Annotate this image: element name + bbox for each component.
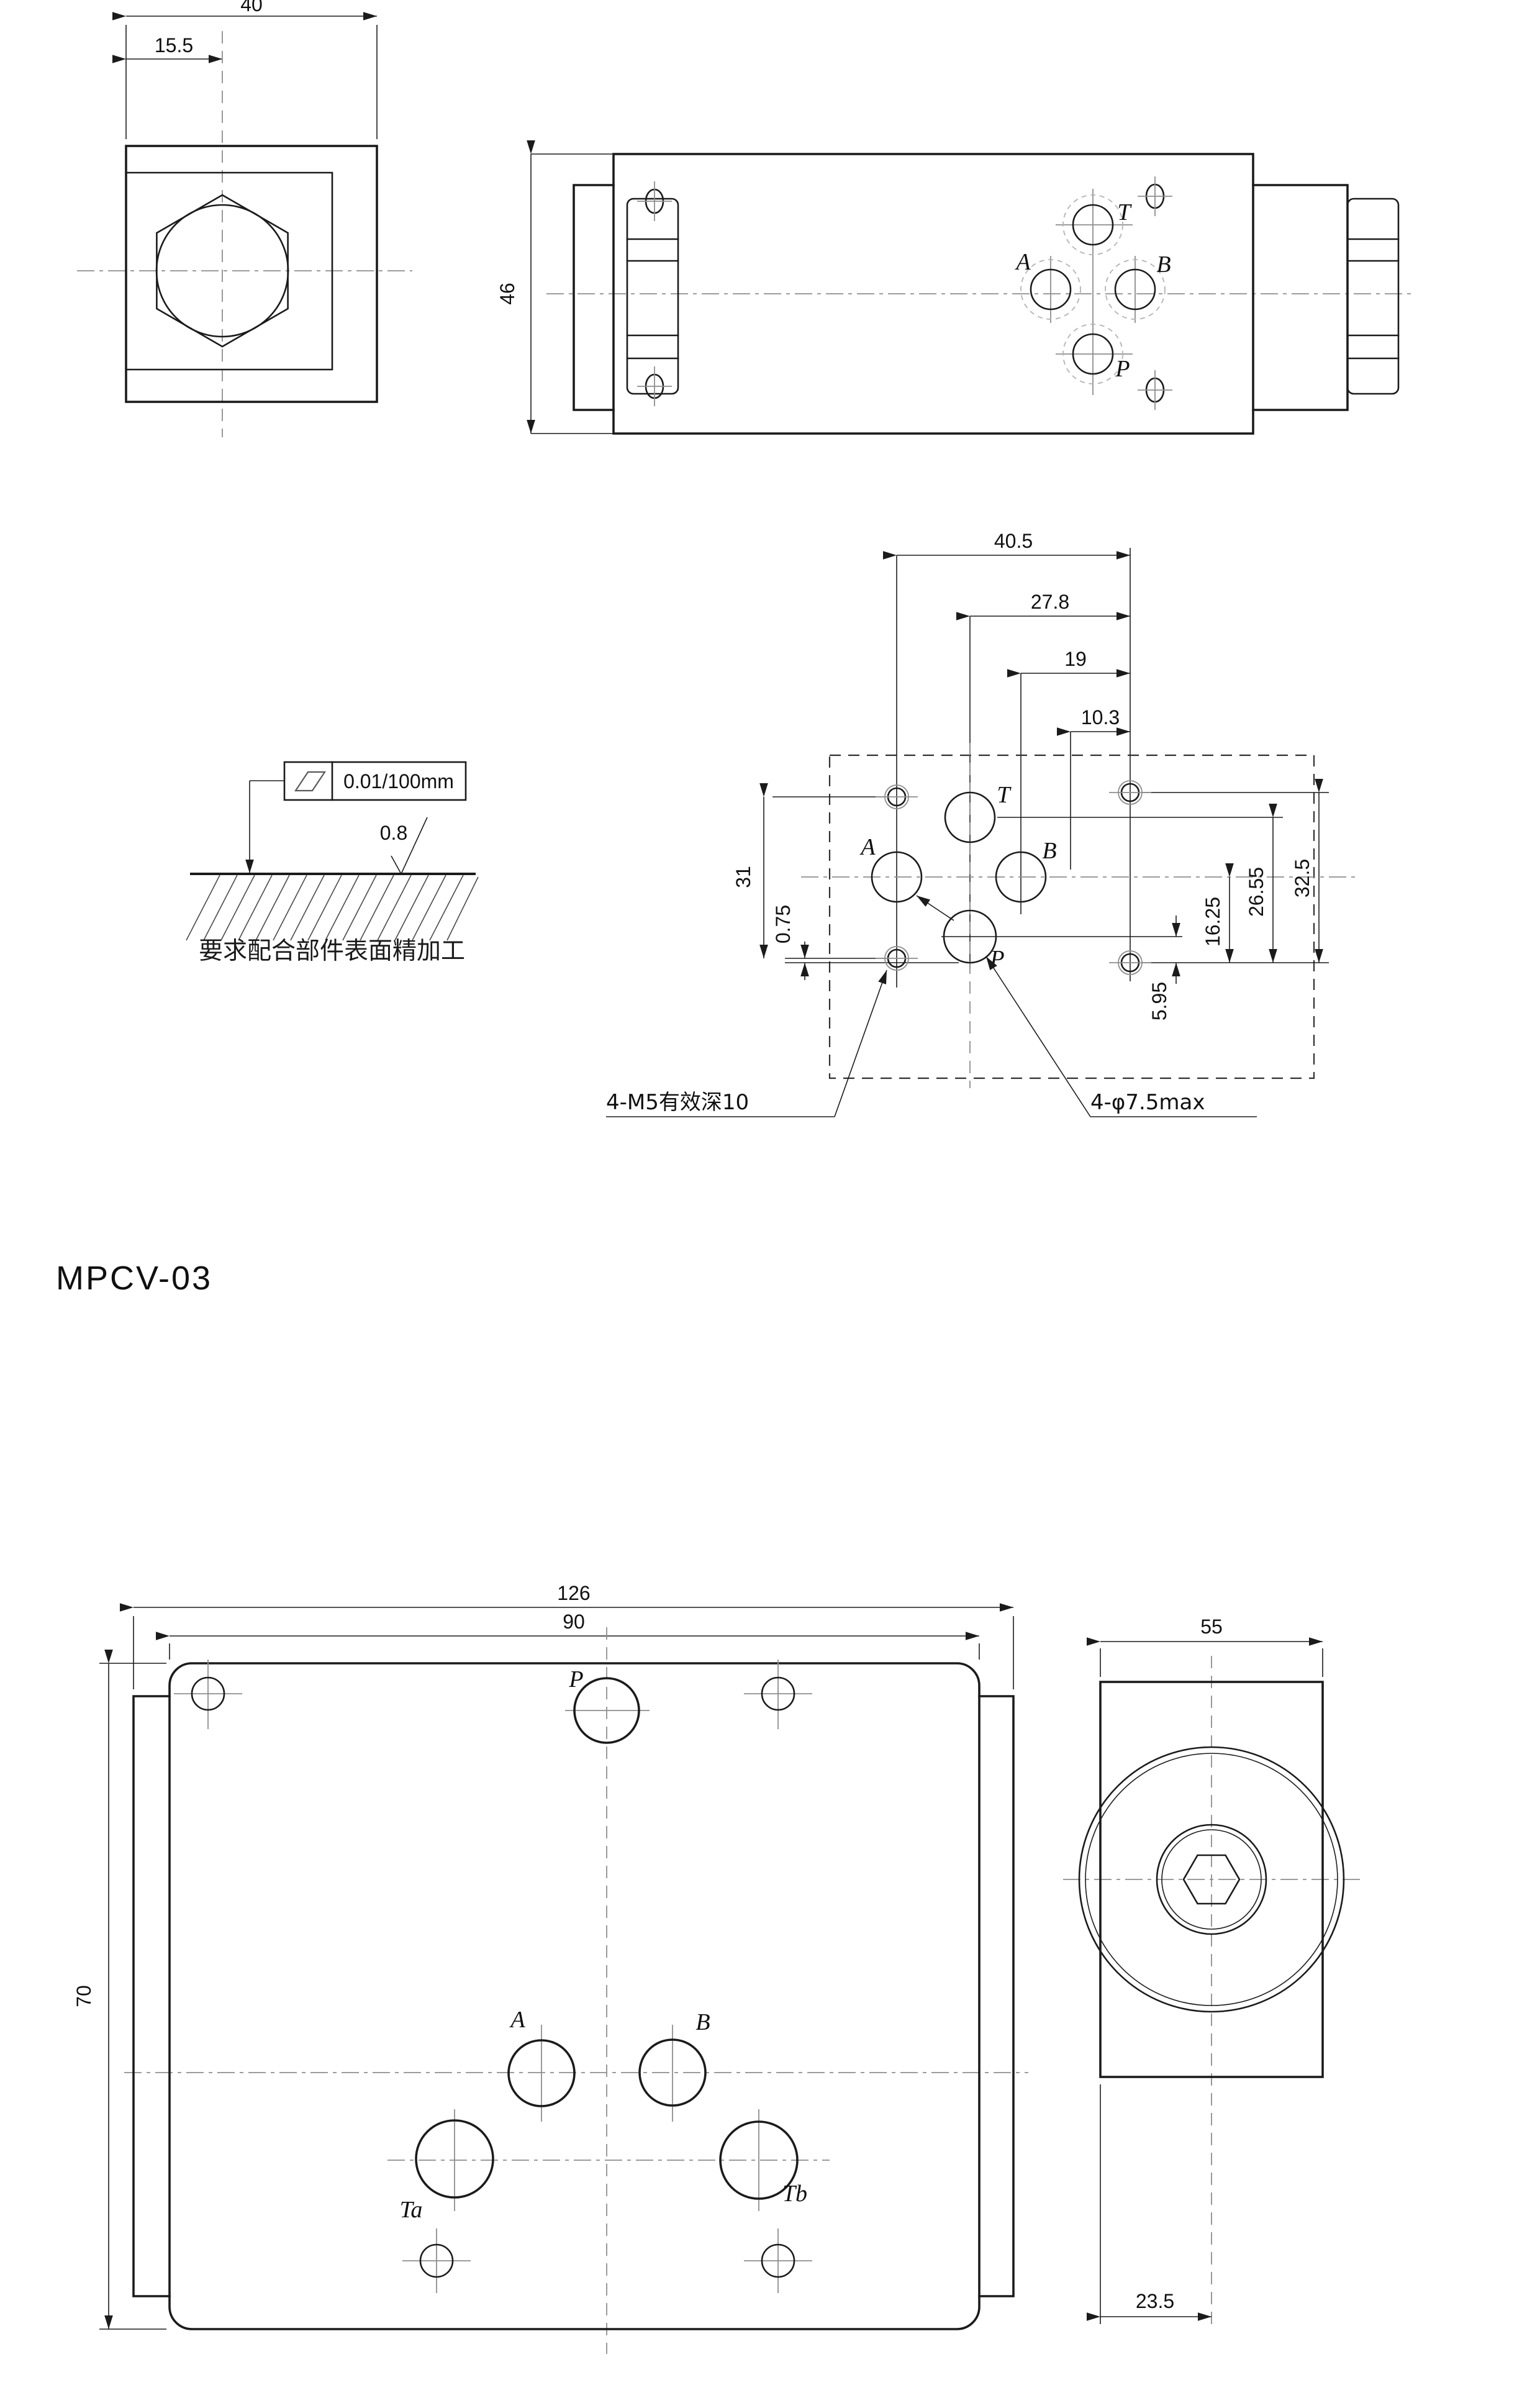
dim-16-25: 16.25 (1202, 897, 1224, 947)
surface-spec: 0.01/100mm 0.8 要求配合部件表面精加工 (186, 762, 478, 965)
mount-port-P-label: P (989, 946, 1004, 972)
bottom-bolt-holes (192, 1678, 794, 2277)
bottom-view: 126 90 70 P A B (73, 1582, 1028, 2354)
dim-5-95: 5.95 (1148, 982, 1171, 1020)
roughness-value: 0.8 (380, 822, 407, 844)
dim-15-5: 15.5 (155, 34, 193, 57)
port-P-label: P (1115, 356, 1130, 382)
dim-70: 70 (73, 1985, 95, 2007)
flatness-value: 0.01/100mm (343, 770, 454, 793)
bottom-port-B-label: B (695, 2009, 710, 2035)
end-view: 40 15.5 (77, 0, 412, 437)
dim-31: 31 (732, 866, 754, 888)
dim-27-8: 27.8 (1031, 591, 1069, 613)
bottom-port-P-label: P (568, 1666, 583, 1692)
note-thread: 4-M5有效深10 (606, 1090, 749, 1115)
bottom-body (170, 1663, 979, 2329)
mounting-bolt-holes (876, 781, 1151, 974)
dim-46: 46 (496, 283, 519, 305)
front-view: 46 (496, 154, 1416, 434)
port-B-label: B (1156, 252, 1171, 278)
hatching (186, 875, 478, 940)
dim-55: 55 (1200, 1615, 1223, 1638)
front-bolt-holes (637, 176, 1172, 410)
dim-40-5: 40.5 (994, 530, 1033, 552)
engineering-drawing: 40 15.5 46 (0, 0, 1540, 2385)
left-hex-nut (627, 199, 678, 394)
dim-23-5: 23.5 (1136, 2290, 1174, 2312)
bottom-right-tab (979, 1696, 1013, 2296)
surface-caption: 要求配合部件表面精加工 (199, 937, 465, 965)
right-hex-nut (1347, 199, 1398, 394)
end-body-outline (126, 146, 377, 402)
parallelism-icon (296, 772, 325, 791)
dim-0-75: 0.75 (772, 905, 794, 943)
front-right-tab (1253, 185, 1347, 410)
bottom-port-A-label: A (509, 2007, 525, 2033)
note-thread-leader: 4-M5有效深10 (606, 970, 887, 1117)
bottom-port-Ta-label: Ta (400, 2197, 423, 2223)
port-A-label: A (1014, 249, 1031, 275)
side-view: 55 23.5 (1063, 1615, 1361, 2325)
dim-90: 90 (563, 1610, 585, 1633)
front-left-tab (574, 185, 614, 410)
dim-19: 19 (1064, 648, 1087, 670)
port-T-label: T (1117, 199, 1132, 225)
bottom-port-Tb-label: Tb (782, 2181, 807, 2207)
mount-port-T-label: T (997, 782, 1012, 808)
dim-26-55: 26.55 (1245, 867, 1267, 917)
dim-32-5: 32.5 (1291, 859, 1313, 897)
mount-port-B-label: B (1042, 838, 1056, 864)
dim-10-3: 10.3 (1081, 706, 1120, 729)
bottom-left-tab (134, 1696, 170, 2296)
model-label: MPCV-03 (56, 1260, 212, 1297)
mount-port-A-label: A (859, 834, 876, 860)
dim-126: 126 (557, 1582, 590, 1604)
note-hole: 4-φ7.5max (1090, 1090, 1205, 1115)
mounting-view: 40.5 27.8 19 10.3 32.5 26.55 16.25 5.95 (606, 530, 1360, 1117)
dim-40: 40 (240, 0, 263, 16)
